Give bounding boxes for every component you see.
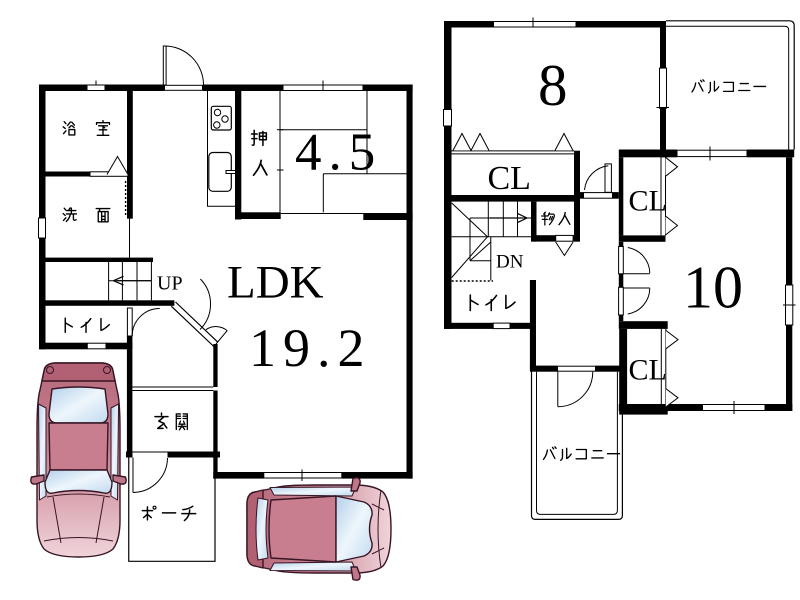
svg-text:8: 8 (538, 52, 568, 118)
svg-text:CL: CL (488, 160, 531, 197)
svg-text:4.5: 4.5 (295, 124, 382, 182)
svg-text:CL: CL (629, 184, 667, 217)
svg-text:LDK: LDK (227, 257, 324, 309)
svg-text:DN: DN (496, 252, 524, 273)
svg-text:19.2: 19.2 (249, 318, 372, 378)
svg-text:UP: UP (157, 273, 183, 295)
svg-text:CL: CL (629, 353, 667, 386)
svg-text:10: 10 (683, 255, 743, 321)
